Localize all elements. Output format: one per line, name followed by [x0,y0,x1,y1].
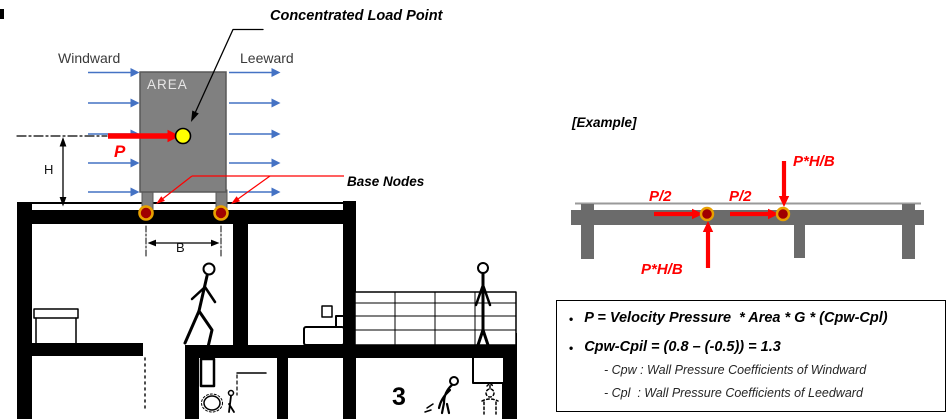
wind-arrows-leeward [229,73,272,193]
base-nodes-label: Base Nodes [347,174,425,189]
closet-sketch [473,357,504,383]
bullet-icon: • [569,341,573,355]
formula-cpw-equation: Cpw-Cpil = (0.8 – (-0.5)) = 1.3 [584,339,781,355]
walking-person-sketch [185,264,215,348]
example-node-right [777,208,789,220]
example-title: [Example] [571,115,637,130]
floor-slab-left [32,343,143,356]
windward-label: Windward [58,50,120,66]
leeward-label: Leeward [240,50,294,66]
clipped-edge-mark [0,9,4,19]
column-left [581,204,594,259]
b-dimension: B [146,226,221,258]
shelf-unit-sketch [355,292,516,345]
p-half-left-label: P/2 [649,188,672,205]
base-node-right [215,207,228,220]
formula-line-2: • Cpw-Cpil = (0.8 – (-0.5)) = 1.3 [569,339,937,355]
center-wall [343,201,356,419]
crouching-person-sketch [425,377,458,413]
interior-wall-upper [233,224,248,345]
example-beam-model [571,204,924,260]
base-node-left [140,207,153,220]
h-dim-label: H [44,162,53,177]
lower-wall-a [185,358,199,419]
sideboard-sketch [34,309,78,343]
formula-notes: - Cpw : Wall Pressure Coefficients of Wi… [604,359,937,405]
example-node-left [701,208,713,220]
column-middle [794,225,805,258]
phb-bottom-label: P*H/B [641,261,683,278]
note-cpw: - Cpw : Wall Pressure Coefficients of Wi… [604,359,937,382]
formula-line-1: • P = Velocity Pressure * Area * G * (Cp… [569,310,937,326]
lower-wall-b [277,358,288,419]
roof-line [17,202,343,204]
formula-box: • P = Velocity Pressure * Area * G * (Cp… [556,300,946,412]
concentrated-load-label: Concentrated Load Point [270,8,444,24]
concentrated-load-point [176,129,191,144]
h-dimension: H [44,137,66,207]
p-label: P [114,142,126,161]
floor-slab-right [185,345,517,358]
b-dim-label: B [176,240,185,255]
phb-top-label: P*H/B [793,153,835,170]
building-section: 3 [0,9,517,419]
area-label: AREA [147,77,188,92]
sofa-sketch [304,306,344,345]
bathroom-sketch [201,359,266,412]
p-half-right-label: P/2 [729,188,752,205]
floor-number-label: 3 [392,383,406,411]
bullet-icon: • [569,312,573,326]
roof-slab [17,210,356,224]
left-exterior-wall [17,202,32,419]
dashed-person-sketch [482,383,498,414]
column-right [902,204,915,259]
wind-arrows-windward [88,73,131,193]
wind-load-diagram-page: 3 AREA Windward Leeward [0,0,952,419]
formula-p-equation: P = Velocity Pressure * Area * G * (Cpw-… [584,310,887,326]
note-cpl: - Cpl : Wall Pressure Coefficients of Le… [604,382,937,405]
